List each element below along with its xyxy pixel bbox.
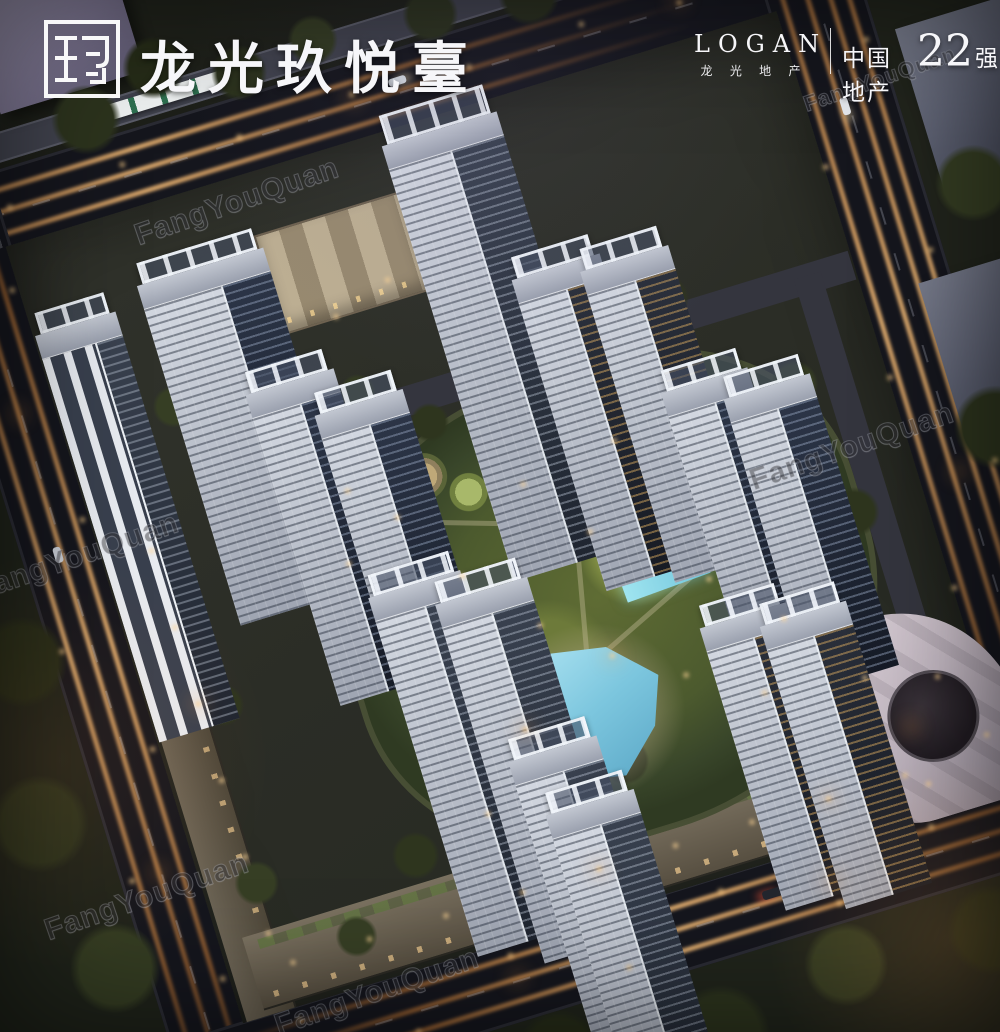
rotated-city-grid [0,0,1000,1032]
aerial-render-scene: FangYouQuan FangYouQuan FangYouQuan Fang… [0,0,1000,1032]
